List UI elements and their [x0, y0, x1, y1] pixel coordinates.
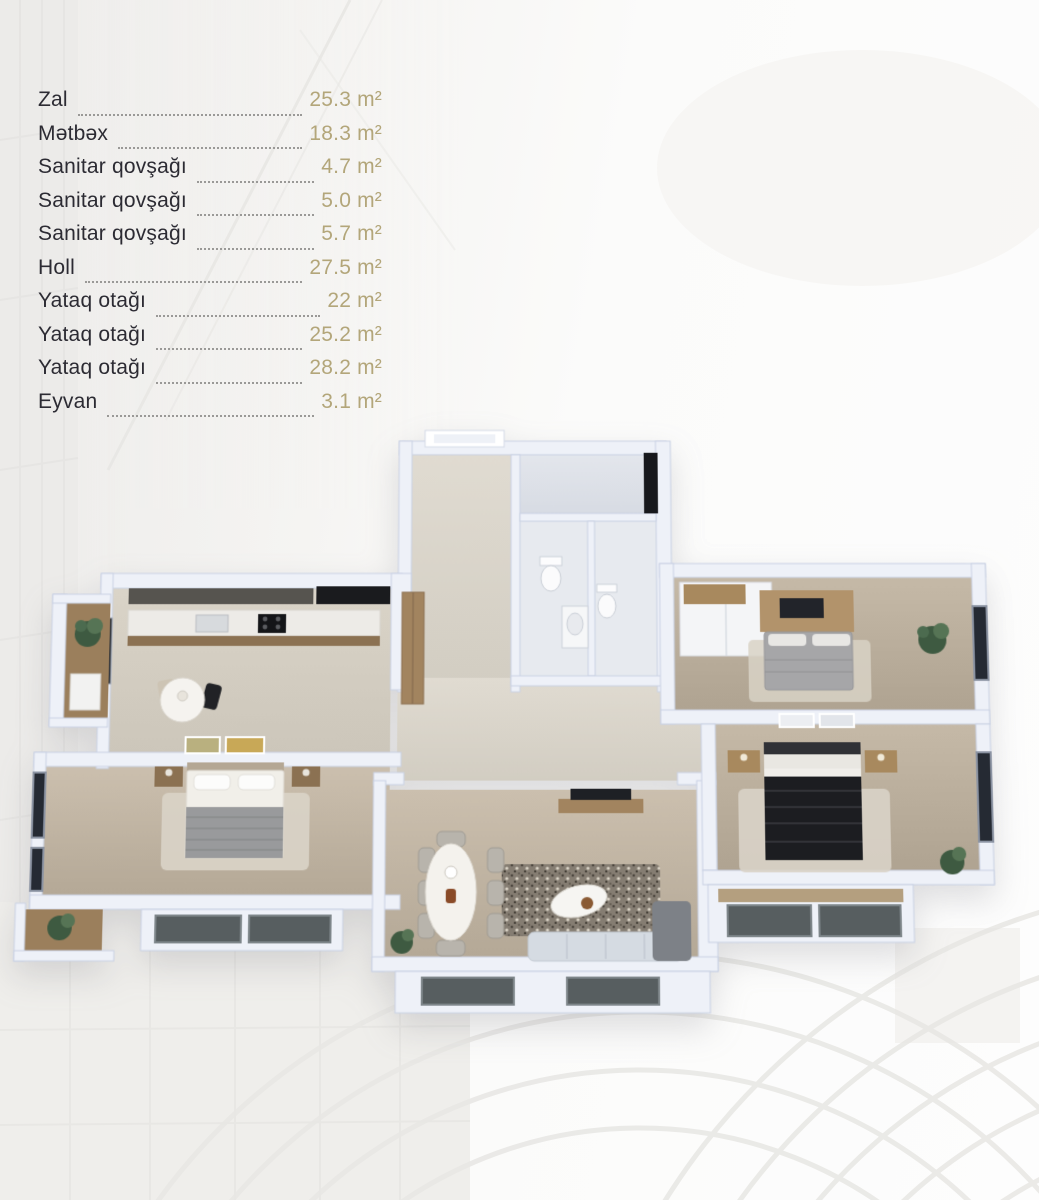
- tv-unit: [558, 789, 643, 813]
- list-item: Zal25.3 m²: [38, 88, 382, 122]
- window: [567, 978, 659, 1005]
- room-label: Yataq otağı: [38, 323, 146, 346]
- list-item: Sanitar qovşağı5.0 m²: [38, 189, 382, 223]
- list-item: Mətbəx18.3 m²: [38, 122, 382, 156]
- dotted-leader: [197, 214, 314, 216]
- list-item: Eyvan3.1 m²: [38, 390, 382, 424]
- room-label: Holl: [38, 256, 75, 279]
- window: [819, 905, 901, 936]
- chair: [436, 940, 465, 956]
- room-list: Zal25.3 m² Mətbəx18.3 m² Sanitar qovşağı…: [38, 88, 382, 423]
- hall-floor: [397, 678, 702, 781]
- dotted-leader: [118, 147, 302, 149]
- nightstand: [865, 750, 898, 772]
- list-item: Sanitar qovşağı4.7 m²: [38, 155, 382, 189]
- window: [728, 905, 812, 936]
- room-label: Yataq otağı: [38, 356, 146, 379]
- room-area-value: 25.2 m²: [309, 323, 382, 346]
- entry-corridor-floor: [411, 455, 512, 686]
- dotted-leader: [85, 281, 302, 283]
- wall-art: [779, 714, 813, 727]
- window: [155, 916, 241, 943]
- chair: [487, 913, 503, 938]
- list-item: Yataq otağı28.2 m²: [38, 356, 382, 390]
- window: [249, 916, 331, 943]
- entry-door-panel: [434, 434, 495, 443]
- window: [30, 848, 43, 891]
- sink: [196, 615, 228, 632]
- toilet-2: [597, 584, 617, 618]
- dotted-leader: [156, 382, 302, 384]
- list-item: Yataq otağı25.2 m²: [38, 323, 382, 357]
- chair: [488, 848, 504, 873]
- room-area-value: 4.7 m²: [321, 155, 382, 178]
- room-area-value: 5.7 m²: [321, 222, 382, 245]
- balcony-cabinet: [70, 674, 101, 710]
- toilet-1: [540, 557, 562, 592]
- backdrop-ellipse: [657, 50, 1039, 286]
- nightstand: [154, 766, 183, 786]
- tv: [571, 789, 632, 800]
- nightstand: [728, 750, 761, 772]
- room-area-value: 22 m²: [327, 289, 382, 312]
- bed: [185, 762, 284, 858]
- list-item: Yataq otağı22 m²: [38, 289, 382, 323]
- tv: [780, 598, 824, 618]
- room-label: Sanitar qovşağı: [38, 189, 187, 212]
- hall: [401, 592, 424, 704]
- balcony-left-bottom: [14, 903, 343, 961]
- room-area-value: 28.2 m²: [309, 356, 382, 379]
- room-label: Sanitar qovşağı: [38, 222, 187, 245]
- balcony-floor: [718, 889, 903, 902]
- wall-art: [820, 714, 854, 727]
- bathroom-1-floor: [520, 455, 656, 514]
- chair: [487, 881, 503, 906]
- room-area-value: 18.3 m²: [309, 122, 382, 145]
- balcony-right-bottom: [708, 885, 915, 943]
- vanity-sink: [562, 606, 588, 648]
- bed-dark: [764, 742, 863, 860]
- window: [977, 752, 994, 841]
- room-label: Zal: [38, 88, 68, 111]
- room-area-value: 3.1 m²: [321, 390, 382, 413]
- stove: [258, 614, 286, 633]
- dotted-leader: [197, 181, 314, 183]
- table-decor: [446, 889, 456, 903]
- window: [32, 773, 46, 838]
- room-area-value: 25.3 m²: [309, 88, 382, 111]
- window: [972, 606, 988, 680]
- room-label: Eyvan: [38, 390, 97, 413]
- utility-shaft: [644, 453, 658, 514]
- nightstand: [292, 766, 321, 786]
- list-item: Sanitar qovşağı5.7 m²: [38, 222, 382, 256]
- accent-panel-tv: [759, 590, 854, 632]
- dotted-leader: [156, 348, 302, 350]
- tall-cabinet: [316, 586, 390, 604]
- dotted-leader: [78, 114, 303, 116]
- window: [422, 978, 514, 1005]
- bed: [764, 632, 853, 690]
- room-label: Sanitar qovşağı: [38, 155, 187, 178]
- floor-plan-render: [3, 419, 1038, 1023]
- room-area-value: 27.5 m²: [309, 256, 382, 279]
- dotted-leader: [156, 315, 320, 317]
- counter-wood-front: [127, 636, 379, 646]
- room-label: Mətbəx: [38, 122, 108, 145]
- wall-art: [185, 737, 220, 753]
- sofa-corner: [652, 901, 691, 961]
- dotted-leader: [107, 415, 314, 417]
- wall-art: [226, 737, 265, 753]
- room-area-value: 5.0 m²: [321, 189, 382, 212]
- backsplash: [129, 588, 314, 604]
- dotted-leader: [197, 248, 314, 250]
- list-item: Holl27.5 m²: [38, 256, 382, 290]
- balcony-kitchen: [49, 594, 111, 727]
- room-label: Yataq otağı: [38, 289, 146, 312]
- kitchen-counter: [128, 610, 380, 636]
